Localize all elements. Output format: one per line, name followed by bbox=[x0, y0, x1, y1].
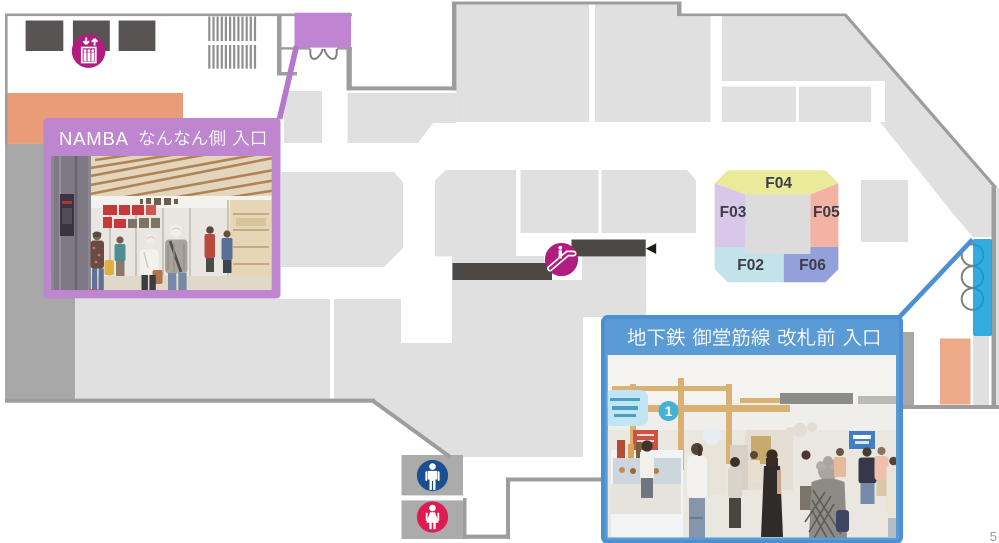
svg-text:NAMBA: NAMBA bbox=[59, 128, 129, 149]
svg-text:F05: F05 bbox=[813, 204, 840, 221]
svg-text:1: 1 bbox=[665, 403, 673, 419]
svg-text:F03: F03 bbox=[720, 204, 747, 221]
svg-text:F04: F04 bbox=[765, 175, 792, 192]
svg-text:5: 5 bbox=[990, 529, 997, 543]
svg-text:F02: F02 bbox=[737, 257, 764, 274]
svg-text:F06: F06 bbox=[799, 257, 826, 274]
